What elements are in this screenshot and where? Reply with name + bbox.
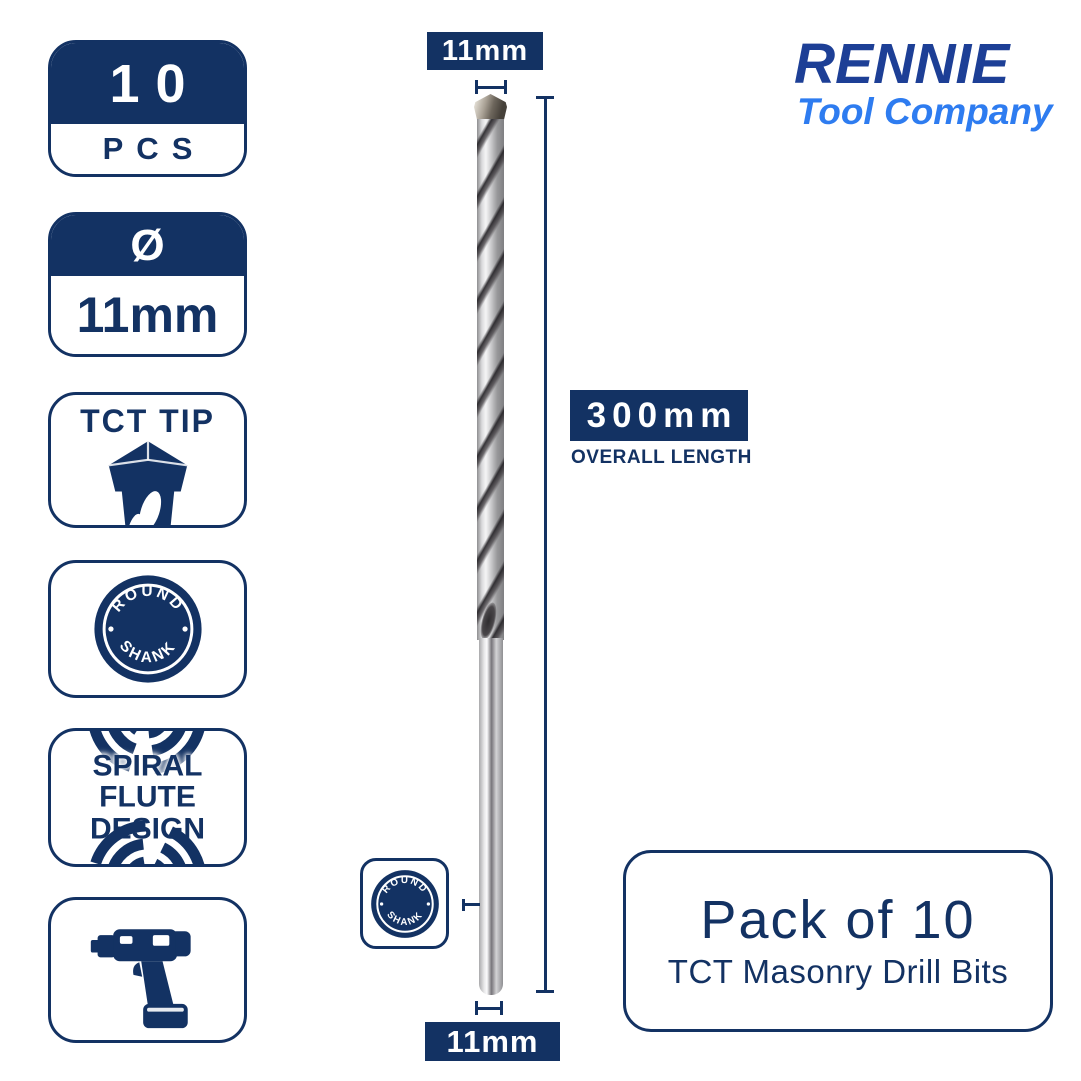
tip-diameter-tick-right <box>504 80 507 94</box>
badge-tct-tip: TCT TIP <box>48 392 247 528</box>
tct-tip-label: TCT TIP <box>51 403 244 440</box>
tip-diameter-dimension-line <box>477 86 507 89</box>
brand-tagline: Tool Company <box>794 91 1074 133</box>
brand-name: RENNIE <box>794 36 1074 93</box>
badge-diameter-top: Ø <box>51 215 244 276</box>
overall-length-caption: OVERALL LENGTH <box>571 447 771 469</box>
badge-spiral-flute: SPIRAL FLUTE DESIGN <box>48 728 247 867</box>
shank-stamp-badge: ROUND SHANK <box>360 858 449 949</box>
badge-diameter-bottom: 11mm <box>51 276 244 354</box>
diameter-symbol-icon: Ø <box>130 221 164 271</box>
spiral-arcs-bottom-icon <box>51 814 244 867</box>
shank-pointer-line <box>462 903 480 906</box>
drill-bit-shank <box>479 638 503 995</box>
badge-diameter: Ø 11mm <box>48 212 247 357</box>
tip-diameter-tick-left <box>475 80 478 94</box>
tct-tip-icon <box>92 438 204 528</box>
pack-subtitle: TCT Masonry Drill Bits <box>668 953 1008 991</box>
power-drill-icon <box>85 905 211 1035</box>
pack-title: Pack of 10 <box>700 891 975 950</box>
drill-bit-tct-tip <box>474 94 507 121</box>
shank-stamp-icon: ROUND SHANK <box>369 868 441 940</box>
spiral-flute-line1: SPIRAL FLUTE <box>51 750 244 814</box>
badge-piece-count-top: 10 <box>51 43 244 124</box>
drill-bit-flute <box>477 119 504 640</box>
piece-count-value: 10 <box>93 53 201 115</box>
badge-piece-count: 10 PCS <box>48 40 247 177</box>
badge-round-shank: ROUND SHANK <box>48 560 247 698</box>
shank-diameter-label: 11mm <box>425 1022 560 1061</box>
overall-length-tick-top <box>536 96 554 99</box>
badge-power-drill <box>48 897 247 1043</box>
round-shank-stamp-icon: ROUND SHANK <box>91 572 205 686</box>
brand-logo: RENNIE Tool Company <box>794 36 1074 133</box>
shank-diameter-tick-right <box>500 1001 503 1015</box>
overall-length-value: 300mm <box>570 390 748 441</box>
shank-diameter-tick-left <box>475 1001 478 1015</box>
overall-length-dimension-line <box>544 97 547 993</box>
piece-count-unit: PCS <box>90 131 206 167</box>
diameter-value: 11mm <box>77 286 219 344</box>
pack-description-box: Pack of 10 TCT Masonry Drill Bits <box>623 850 1053 1032</box>
badge-piece-count-bottom: PCS <box>51 124 244 174</box>
product-infographic: 10 PCS Ø 11mm TCT TIP <box>0 0 1081 1081</box>
overall-length-tick-bottom <box>536 990 554 993</box>
tip-diameter-label: 11mm <box>427 32 543 70</box>
